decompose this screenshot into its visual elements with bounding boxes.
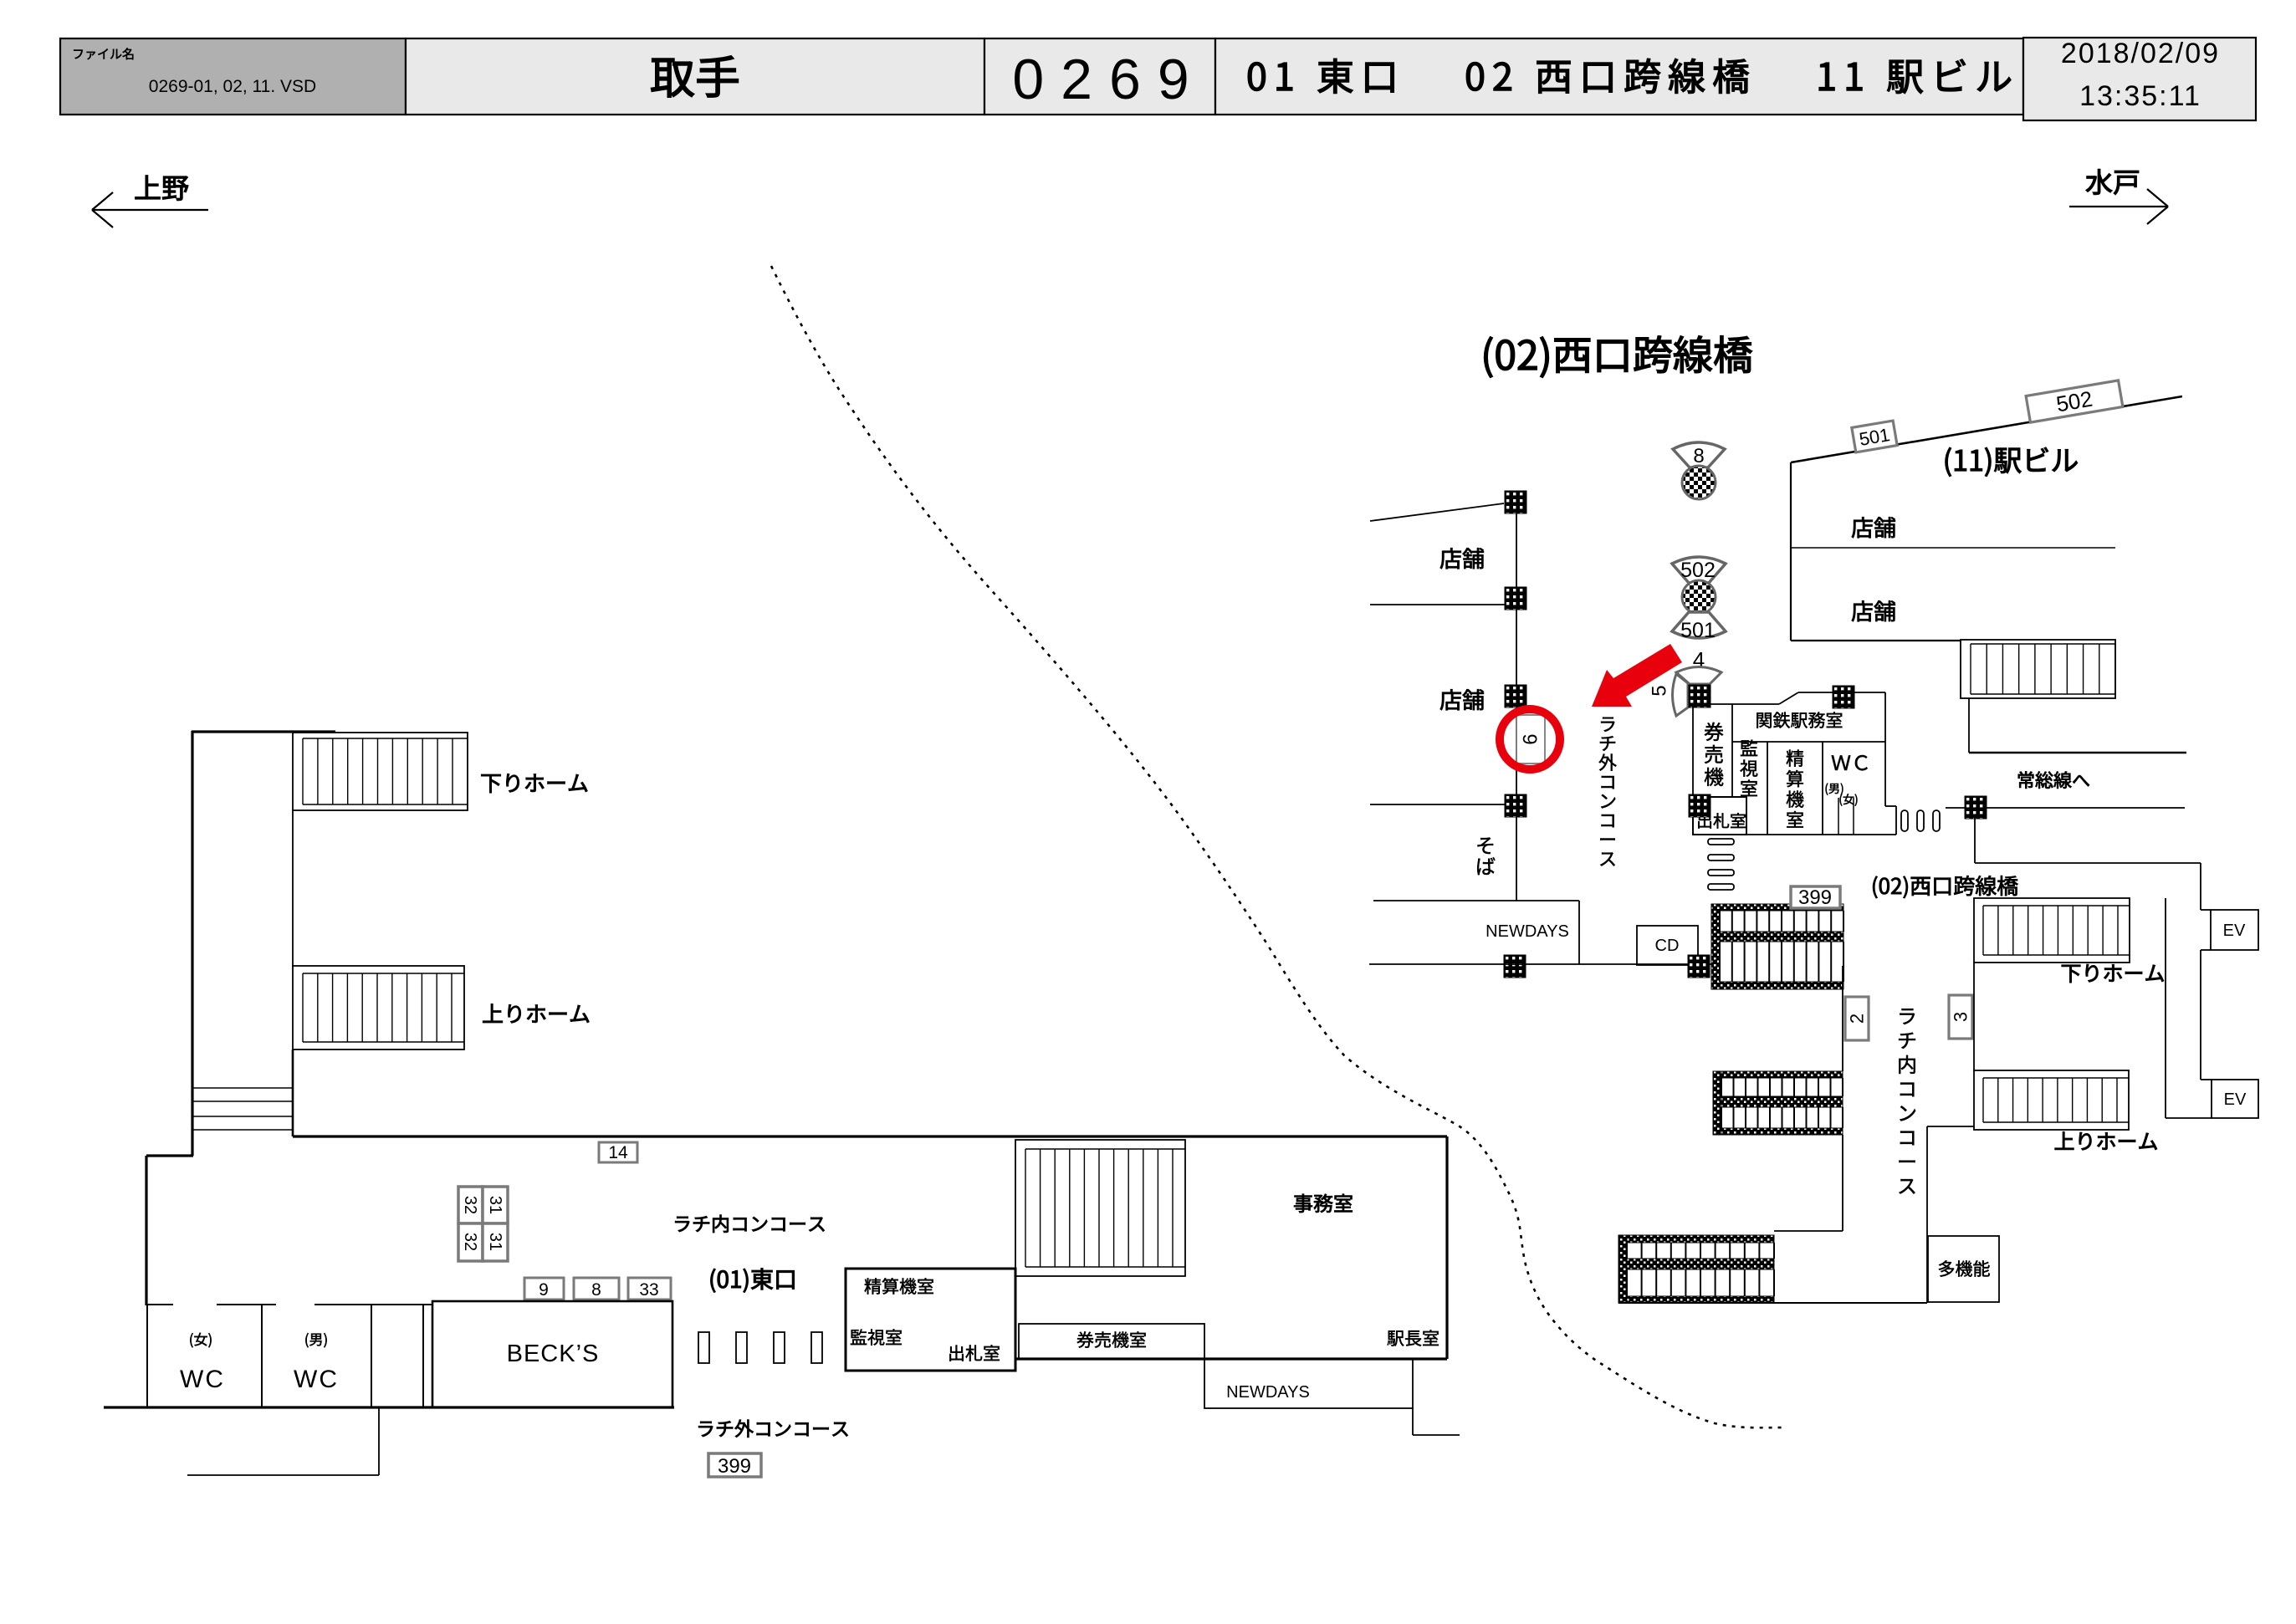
svg-text:WC: WC (294, 1366, 339, 1393)
svg-text:399: 399 (718, 1455, 751, 1478)
svg-text:3: 3 (1951, 1012, 1971, 1022)
svg-text:NEWDAYS: NEWDAYS (1485, 922, 1569, 941)
svg-text:NEWDAYS: NEWDAYS (1226, 1383, 1310, 1402)
svg-text:9: 9 (539, 1280, 549, 1300)
svg-text:6: 6 (1520, 733, 1542, 744)
svg-text:501: 501 (1680, 619, 1716, 642)
svg-text:33: 33 (639, 1280, 658, 1300)
svg-text:0269-01, 02, 11. VSD: 0269-01, 02, 11. VSD (149, 77, 316, 96)
svg-text:32: 32 (461, 1196, 479, 1214)
svg-text:502: 502 (1680, 559, 1716, 582)
svg-text:13:35:11: 13:35:11 (2079, 80, 2201, 112)
svg-text:0269: 0269 (1012, 48, 1205, 111)
svg-text:BECK’S: BECK’S (507, 1341, 600, 1367)
svg-text:EV: EV (2224, 1090, 2247, 1109)
svg-text:14: 14 (608, 1143, 628, 1162)
svg-text:WC: WC (180, 1366, 225, 1393)
svg-text:8: 8 (591, 1280, 601, 1300)
svg-text:2: 2 (1847, 1014, 1868, 1024)
svg-text:5: 5 (1649, 685, 1671, 696)
svg-text:399: 399 (1798, 886, 1832, 909)
svg-text:EV: EV (2223, 922, 2246, 940)
svg-text:2018/02/09: 2018/02/09 (2061, 38, 2220, 69)
svg-text:32: 32 (461, 1233, 479, 1251)
svg-text:31: 31 (486, 1233, 504, 1251)
svg-text:CD: CD (1655, 937, 1680, 955)
svg-text:31: 31 (486, 1196, 504, 1214)
svg-text:8: 8 (1693, 445, 1704, 467)
